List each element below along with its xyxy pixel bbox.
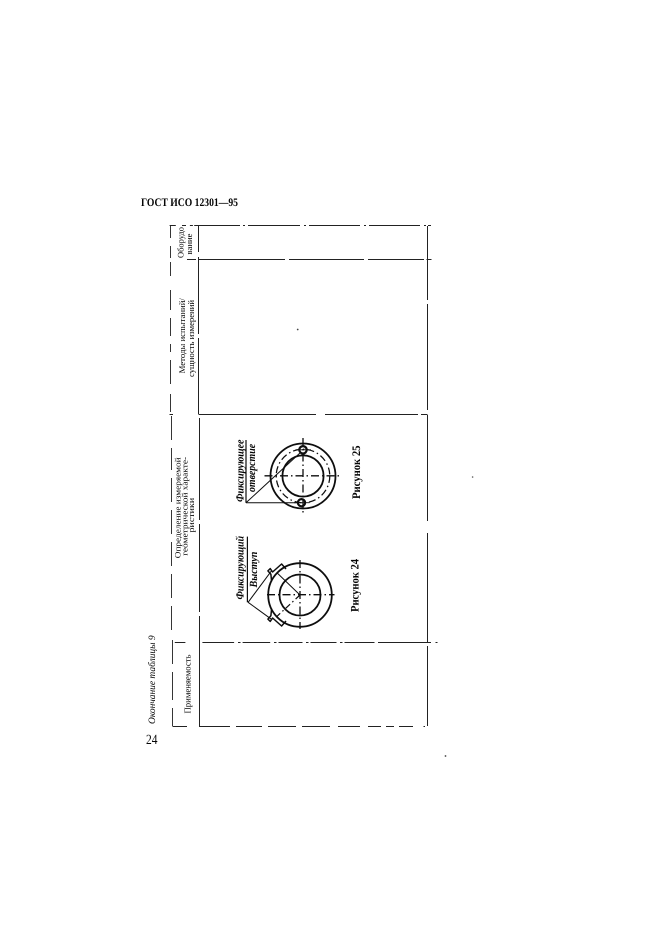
svg-text:ристики: ристики bbox=[187, 497, 196, 532]
svg-text:Рисунок 25: Рисунок 25 bbox=[351, 445, 363, 499]
svg-text:ГОСТ ИСО 12301—95: ГОСТ ИСО 12301—95 bbox=[141, 197, 238, 209]
svg-text:сущность измерений: сущность измерений bbox=[186, 300, 196, 377]
svg-text:Окончание таблицы 9: Окончание таблицы 9 bbox=[147, 635, 158, 724]
svg-text:Выступ: Выступ bbox=[248, 552, 260, 589]
svg-text:вание: вание bbox=[184, 233, 194, 254]
svg-text:отверстие: отверстие bbox=[246, 444, 258, 492]
svg-text:Рисунок 24: Рисунок 24 bbox=[350, 559, 362, 612]
svg-text:Фиксирующий: Фиксирующий bbox=[235, 536, 247, 600]
svg-text:Применяемость: Применяемость bbox=[182, 655, 192, 714]
svg-text:Фиксирующее: Фиксирующее bbox=[234, 439, 246, 502]
svg-text:24: 24 bbox=[146, 733, 158, 748]
